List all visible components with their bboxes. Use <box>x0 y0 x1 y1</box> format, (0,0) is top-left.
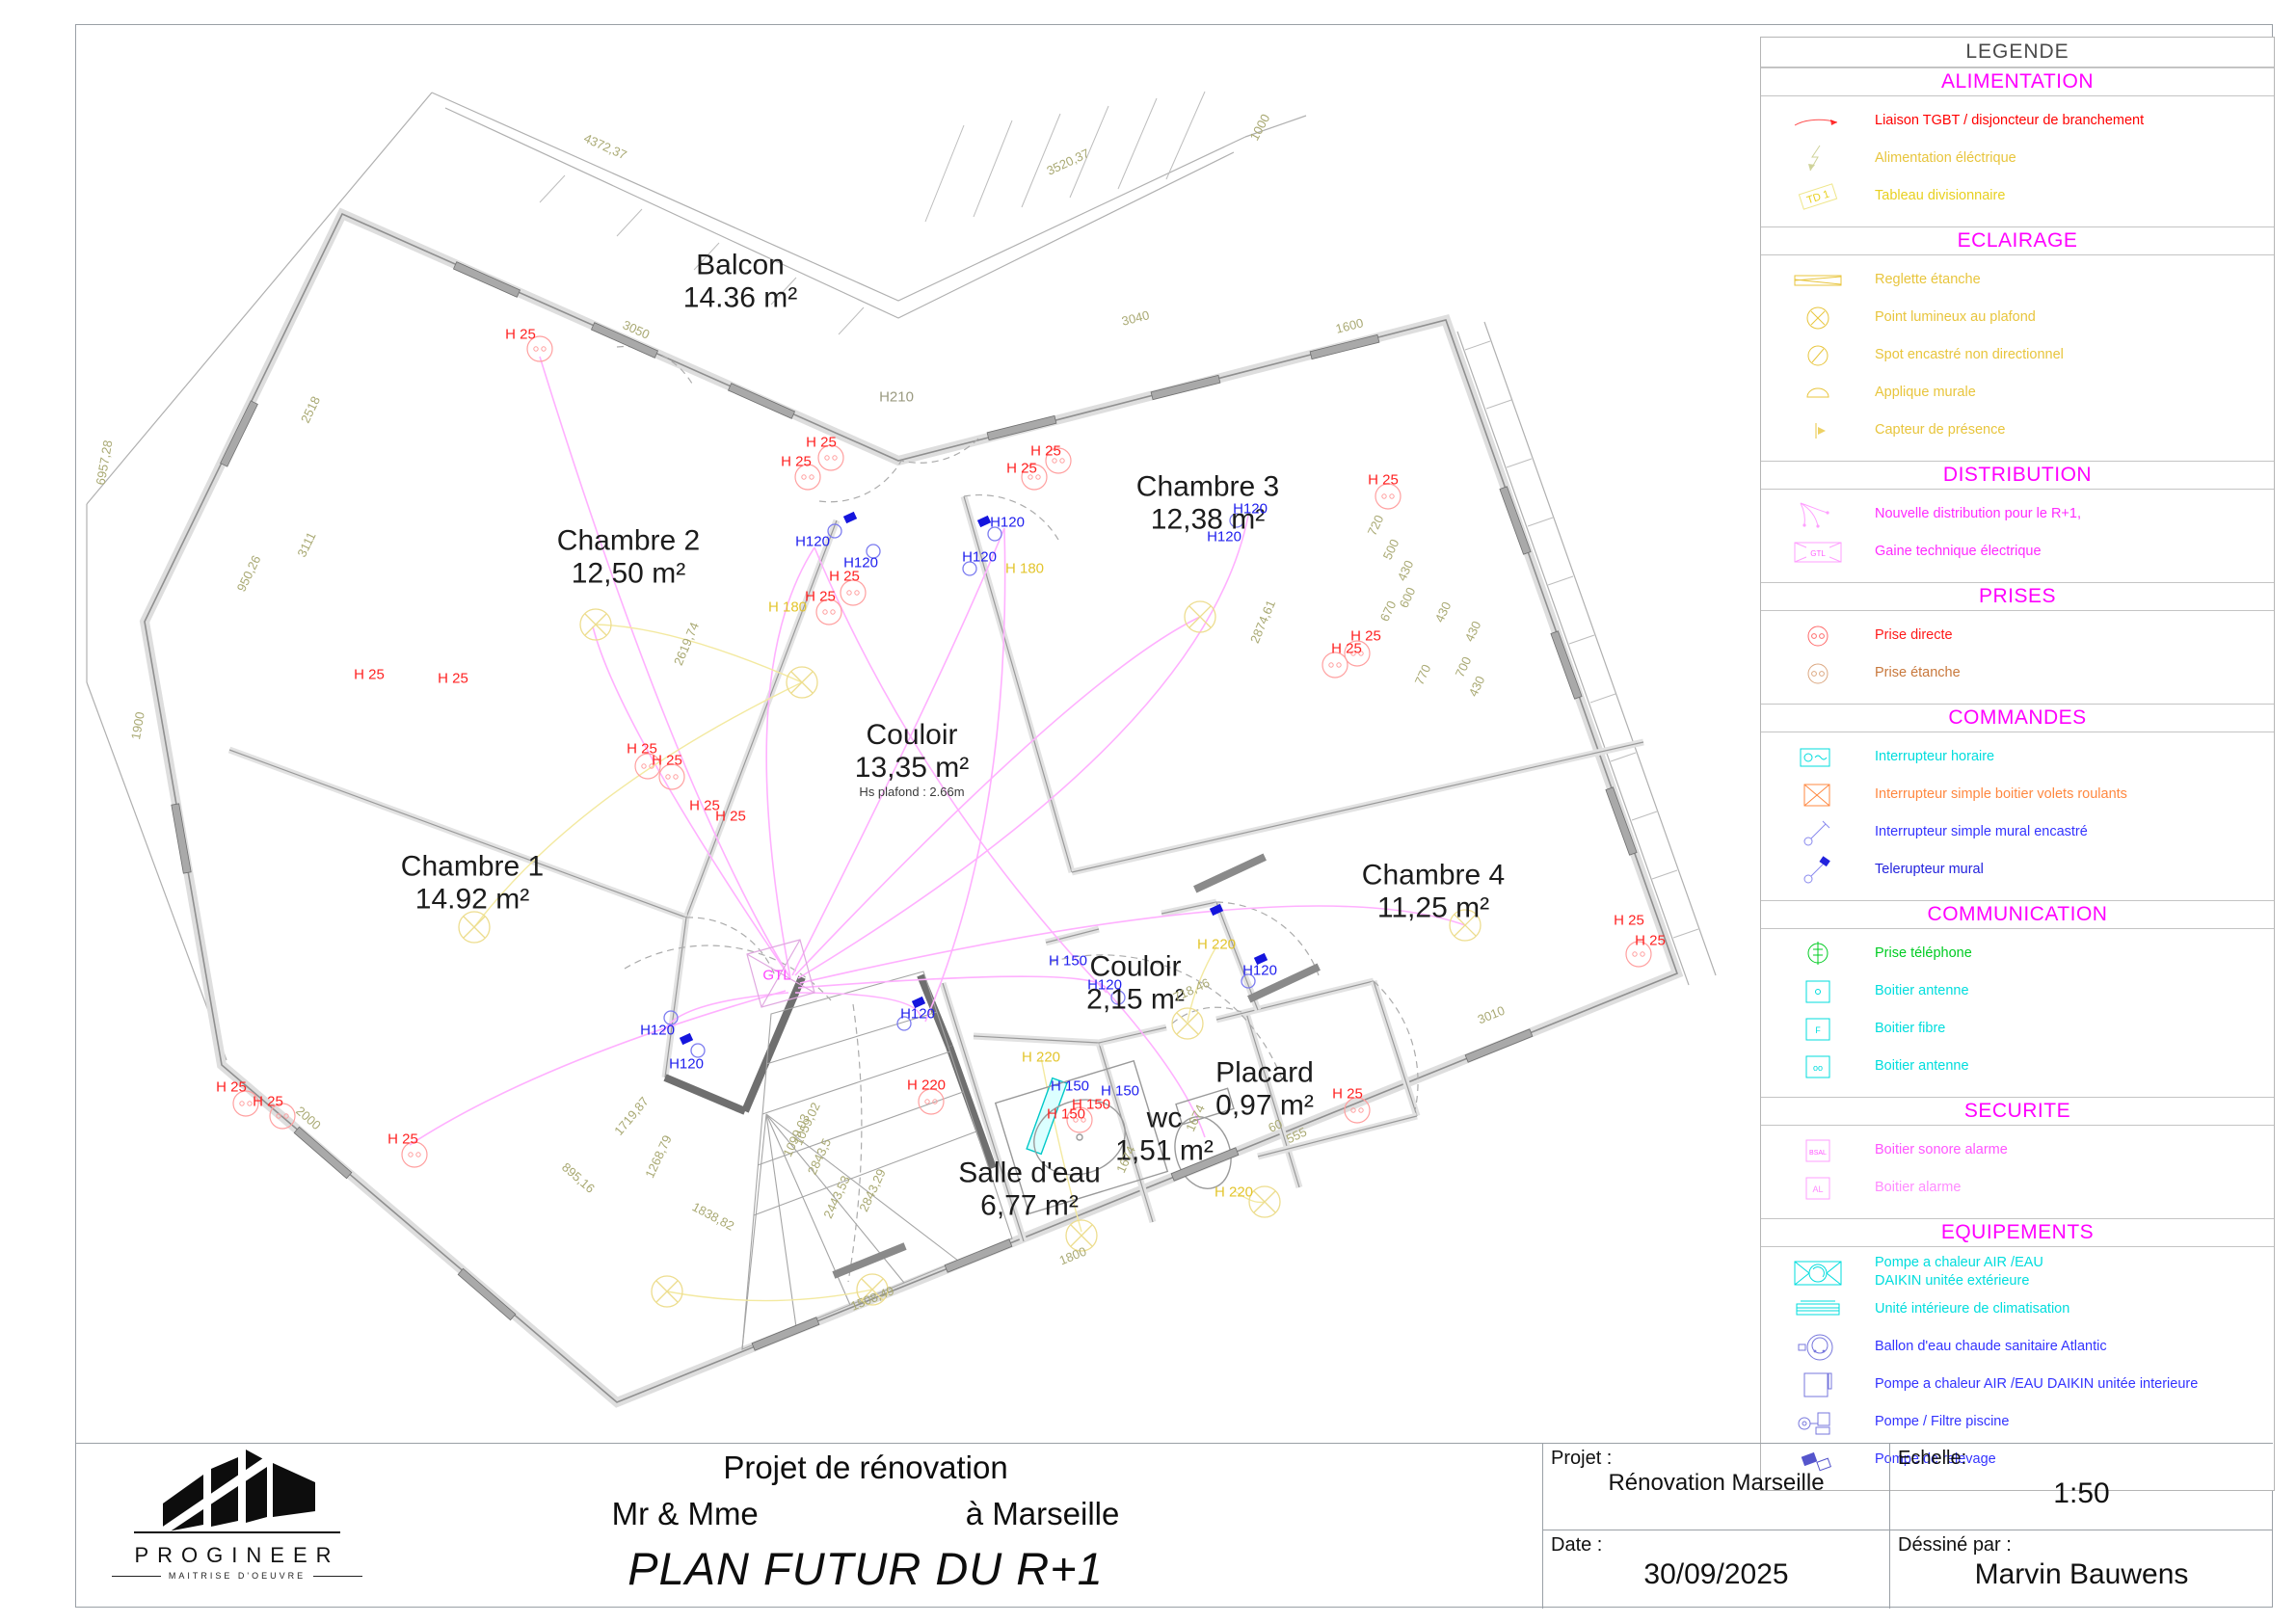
socket-symbol <box>233 1091 258 1116</box>
legend-item: Liaison TGBT / disjoncteur de branchemen… <box>1761 102 2274 140</box>
legend-item: Spot encastré non directionnel <box>1761 336 2274 374</box>
project-title: Projet de rénovation <box>307 1450 1425 1486</box>
circle-x-icon <box>1791 303 1845 333</box>
wall-switch-symbol <box>691 1044 705 1057</box>
legend-item: Boitier antenne <box>1761 972 2274 1010</box>
legend-item: Interrupteur simple mural encastré <box>1761 813 2274 851</box>
legend-section-commandes: COMMANDES <box>1761 704 2274 732</box>
socket-symbol <box>1626 942 1651 967</box>
circle-slash-icon <box>1791 340 1845 371</box>
legend-items: Prise directePrise étanche <box>1761 611 2274 704</box>
reglette-icon <box>1791 265 1845 296</box>
plan-title: PLAN FUTUR DU R+1 <box>307 1542 1425 1595</box>
legend-item-label: Ballon d'eau chaude sanitaire Atlantic <box>1875 1338 2107 1355</box>
legend-section-alimentation: ALIMENTATION <box>1761 67 2274 96</box>
socket-symbol <box>1067 1107 1092 1132</box>
circle-cross-icon <box>1791 939 1845 970</box>
legend-item-label: Nouvelle distribution pour le R+1, <box>1875 505 2081 522</box>
socket-symbol <box>1046 448 1071 473</box>
legend-item-label: Applique murale <box>1875 384 1976 401</box>
dessine-label: Déssiné par : <box>1890 1530 2273 1556</box>
box-circle-icon <box>1791 976 1845 1007</box>
legend-item: Applique murale <box>1761 374 2274 412</box>
legend-title: LEGENDE <box>1761 38 2274 67</box>
window-symbol <box>987 415 1056 439</box>
legend-item-label: Point lumineux au plafond <box>1875 308 2036 326</box>
legend-item-label: Unité intérieure de climatisation <box>1875 1300 2069 1317</box>
liaison-icon <box>1791 106 1845 137</box>
socket-symbol <box>402 1142 427 1167</box>
legend-item: Pompe a chaleur AIR /EAU DAIKIN unitée i… <box>1761 1366 2274 1403</box>
legend-item-label: Boitier alarme <box>1875 1179 1961 1196</box>
legend-items: BSALBoitier sonore alarmeALBoitier alarm… <box>1761 1126 2274 1218</box>
legend-item-label: Alimentation éléctrique <box>1875 149 2016 167</box>
lightning-icon <box>1791 144 1845 174</box>
window-symbol <box>172 804 191 873</box>
legend-item-label: Tableau divisionnaire <box>1875 187 2005 204</box>
svg-text:F: F <box>1815 1025 1821 1035</box>
legend-items: Interrupteur horaireInterrupteur simple … <box>1761 732 2274 900</box>
distribution-icon <box>1791 499 1845 530</box>
legend-item-label: Interrupteur horaire <box>1875 748 1994 765</box>
legend-item: FBoitier fibre <box>1761 1010 2274 1048</box>
wall-switch-symbol <box>963 562 976 575</box>
window-symbol <box>1310 334 1379 359</box>
door-panel-symbol <box>1193 853 1267 892</box>
box-badge-icon: BSAL <box>1791 1135 1845 1166</box>
box-badge-icon: AL <box>1791 1173 1845 1204</box>
legend-items: Liaison TGBT / disjoncteur de branchemen… <box>1761 96 2274 226</box>
legend-item: ooBoitier antenne <box>1761 1048 2274 1085</box>
window-symbol <box>728 384 794 419</box>
td1-icon: TD 1 <box>1791 181 1845 212</box>
svg-text:BSAL: BSAL <box>1809 1150 1827 1157</box>
legend-item: Ballon d'eau chaude sanitaire Atlantic <box>1761 1328 2274 1366</box>
legend-items: Reglette étanchePoint lumineux au plafon… <box>1761 255 2274 461</box>
window-symbol <box>1171 1148 1239 1181</box>
socket-symbol <box>1322 652 1348 678</box>
legend-item-label: Liaison TGBT / disjoncteur de branchemen… <box>1875 112 2144 129</box>
wall-switch-symbol <box>1230 514 1243 527</box>
window-symbol <box>453 262 520 298</box>
socket-symbol <box>841 580 866 605</box>
window-symbol <box>945 1239 1012 1272</box>
legend-item-label: Capteur de présence <box>1875 421 2005 439</box>
legend-item-label: Prise directe <box>1875 626 1953 644</box>
telerupteur-symbol <box>912 997 925 1008</box>
legend-item-label: Prise étanche <box>1875 664 1961 681</box>
legend-section-communication: COMMUNICATION <box>1761 900 2274 929</box>
inter-horaire-icon <box>1791 742 1845 773</box>
legend-item-label: Boitier antenne <box>1875 1057 1969 1075</box>
legend-item: Telerupteur mural <box>1761 851 2274 889</box>
project-city: à Marseille <box>966 1496 1120 1532</box>
telerupteur-symbol <box>977 516 991 527</box>
legend-item: Pompe / Filtre piscine <box>1761 1403 2274 1441</box>
legend-item-label: Boitier sonore alarme <box>1875 1141 2008 1158</box>
legend-items: Nouvelle distribution pour le R+1,GTLGai… <box>1761 490 2274 582</box>
legend-item: Pompe a chaleur AIR /EAU DAIKIN unitée e… <box>1761 1253 2274 1290</box>
switch-flag-icon <box>1791 855 1845 886</box>
projet-label: Projet : <box>1543 1444 1889 1470</box>
legend-item: Prise directe <box>1761 617 2274 654</box>
window-symbol <box>1465 1029 1533 1062</box>
box-badge-icon: F <box>1791 1014 1845 1045</box>
ballon-icon <box>1791 1332 1845 1363</box>
dessine-value: Marvin Bauwens <box>1890 1558 2273 1591</box>
socket-symbol <box>1345 641 1370 666</box>
legend-item-label: Pompe a chaleur AIR /EAU DAIKIN unitée i… <box>1875 1375 2198 1393</box>
window-symbol <box>294 1127 352 1178</box>
legend-item-label: Pompe a chaleur AIR /EAU DAIKIN unitée e… <box>1875 1254 2043 1289</box>
title-block: PROGINEER MAITRISE D'OEUVRE Projet de ré… <box>75 1443 2273 1608</box>
legend-item-label: Prise téléphone <box>1875 945 1972 962</box>
legend-item: Prise étanche <box>1761 654 2274 692</box>
door-panel-symbol <box>832 1242 906 1278</box>
legend-item-label: Pompe / Filtre piscine <box>1875 1413 2009 1430</box>
window-symbol <box>1500 487 1531 554</box>
clim-icon <box>1791 1294 1845 1325</box>
echelle-value: 1:50 <box>1890 1477 2273 1510</box>
drawing-sheet: Balcon14.36 m²Chambre 212,50 m²Chambre 3… <box>0 0 2296 1623</box>
legend-item: BSALBoitier sonore alarme <box>1761 1131 2274 1169</box>
legend-item: Unité intérieure de climatisation <box>1761 1290 2274 1328</box>
date-label: Date : <box>1543 1530 1889 1556</box>
legend-item: Alimentation éléctrique <box>1761 140 2274 177</box>
capteur-icon <box>1791 415 1845 446</box>
legend-item: Point lumineux au plafond <box>1761 299 2274 336</box>
pac-ext-icon <box>1791 1257 1845 1288</box>
legend-item-label: Spot encastré non directionnel <box>1875 346 2064 363</box>
window-symbol <box>1606 787 1637 855</box>
gtl-icon: GTL <box>1791 537 1845 568</box>
echelle-cell: Echelle: 1:50 <box>1889 1444 2273 1530</box>
telerupteur-symbol <box>843 512 857 523</box>
title-block-main-cell: PROGINEER MAITRISE D'OEUVRE Projet de ré… <box>75 1444 1542 1609</box>
svg-text:AL: AL <box>1812 1184 1823 1194</box>
wall-switch-symbol <box>867 545 880 558</box>
applique-icon <box>1791 378 1845 409</box>
drawing-titles: Projet de rénovation Mr & Mme à Marseill… <box>307 1450 1425 1595</box>
date-cell: Date : 30/09/2025 <box>1542 1530 1889 1609</box>
legend-item: Interrupteur horaire <box>1761 738 2274 776</box>
legend-section-securite: SECURITE <box>1761 1097 2274 1126</box>
legend-item: GTLGaine technique électrique <box>1761 533 2274 571</box>
box-x-icon <box>1791 780 1845 811</box>
socket-symbol <box>816 599 841 625</box>
wall-switch-symbol <box>988 527 1001 541</box>
svg-text:GTL: GTL <box>1810 549 1826 558</box>
client-name: Mr & Mme <box>612 1496 759 1532</box>
legend-item: Reglette étanche <box>1761 261 2274 299</box>
legend-item: Interrupteur simple boitier volets roula… <box>1761 776 2274 813</box>
svg-text:oo: oo <box>1813 1063 1823 1073</box>
legend-item: Prise téléphone <box>1761 935 2274 972</box>
legend-item-label: Boitier fibre <box>1875 1020 1945 1037</box>
client-location-line: Mr & Mme à Marseille <box>307 1496 1425 1532</box>
legend-section-equipements: EQUIPEMENTS <box>1761 1218 2274 1247</box>
legend-items: Prise téléphoneBoitier antenneFBoitier f… <box>1761 929 2274 1097</box>
projet-value: Rénovation Marseille <box>1543 1470 1889 1497</box>
projet-cell: Projet : Rénovation Marseille <box>1542 1444 1889 1530</box>
legend-item: ALBoitier alarme <box>1761 1169 2274 1207</box>
legend-item-label: Reglette étanche <box>1875 271 1981 288</box>
switch-icon <box>1791 817 1845 848</box>
pompe-piscine-icon <box>1791 1407 1845 1438</box>
window-symbol <box>458 1268 516 1319</box>
legend-item-label: Interrupteur simple mural encastré <box>1875 823 2088 840</box>
legend-section-distribution: DISTRIBUTION <box>1761 461 2274 490</box>
socket-symbol <box>795 465 820 490</box>
telerupteur-symbol <box>680 1033 693 1045</box>
date-value: 30/09/2025 <box>1543 1558 1889 1591</box>
window-symbol <box>591 323 657 359</box>
socket-symbol <box>919 1089 944 1114</box>
dessine-cell: Déssiné par : Marvin Bauwens <box>1889 1530 2273 1609</box>
prise-icon <box>1791 621 1845 652</box>
window-symbol <box>221 401 258 466</box>
legend-item-label: Gaine technique électrique <box>1875 543 2042 560</box>
pac-int-icon <box>1791 1370 1845 1400</box>
window-symbol <box>752 1317 819 1350</box>
legend-panel: LEGENDE ALIMENTATIONLiaison TGBT / disjo… <box>1760 37 2275 1491</box>
box-badge-icon: oo <box>1791 1051 1845 1082</box>
legend-item: TD 1Tableau divisionnaire <box>1761 177 2274 215</box>
legend-item: Nouvelle distribution pour le R+1, <box>1761 495 2274 533</box>
socket-symbol <box>818 445 843 470</box>
legend-section-eclairage: ECLAIRAGE <box>1761 226 2274 255</box>
telerupteur-symbol <box>1254 953 1268 965</box>
echelle-label: Echelle: <box>1890 1444 2273 1470</box>
legend-item-label: Interrupteur simple boitier volets roula… <box>1875 785 2127 803</box>
socket-symbol <box>1375 484 1401 509</box>
socket-symbol <box>1022 465 1047 490</box>
prise-icon <box>1791 658 1845 689</box>
legend-item: Capteur de présence <box>1761 412 2274 449</box>
window-symbol <box>1151 375 1220 399</box>
legend-section-prises: PRISES <box>1761 582 2274 611</box>
legend-item-label: Telerupteur mural <box>1875 861 1984 878</box>
legend-item-label: Boitier antenne <box>1875 982 1969 999</box>
